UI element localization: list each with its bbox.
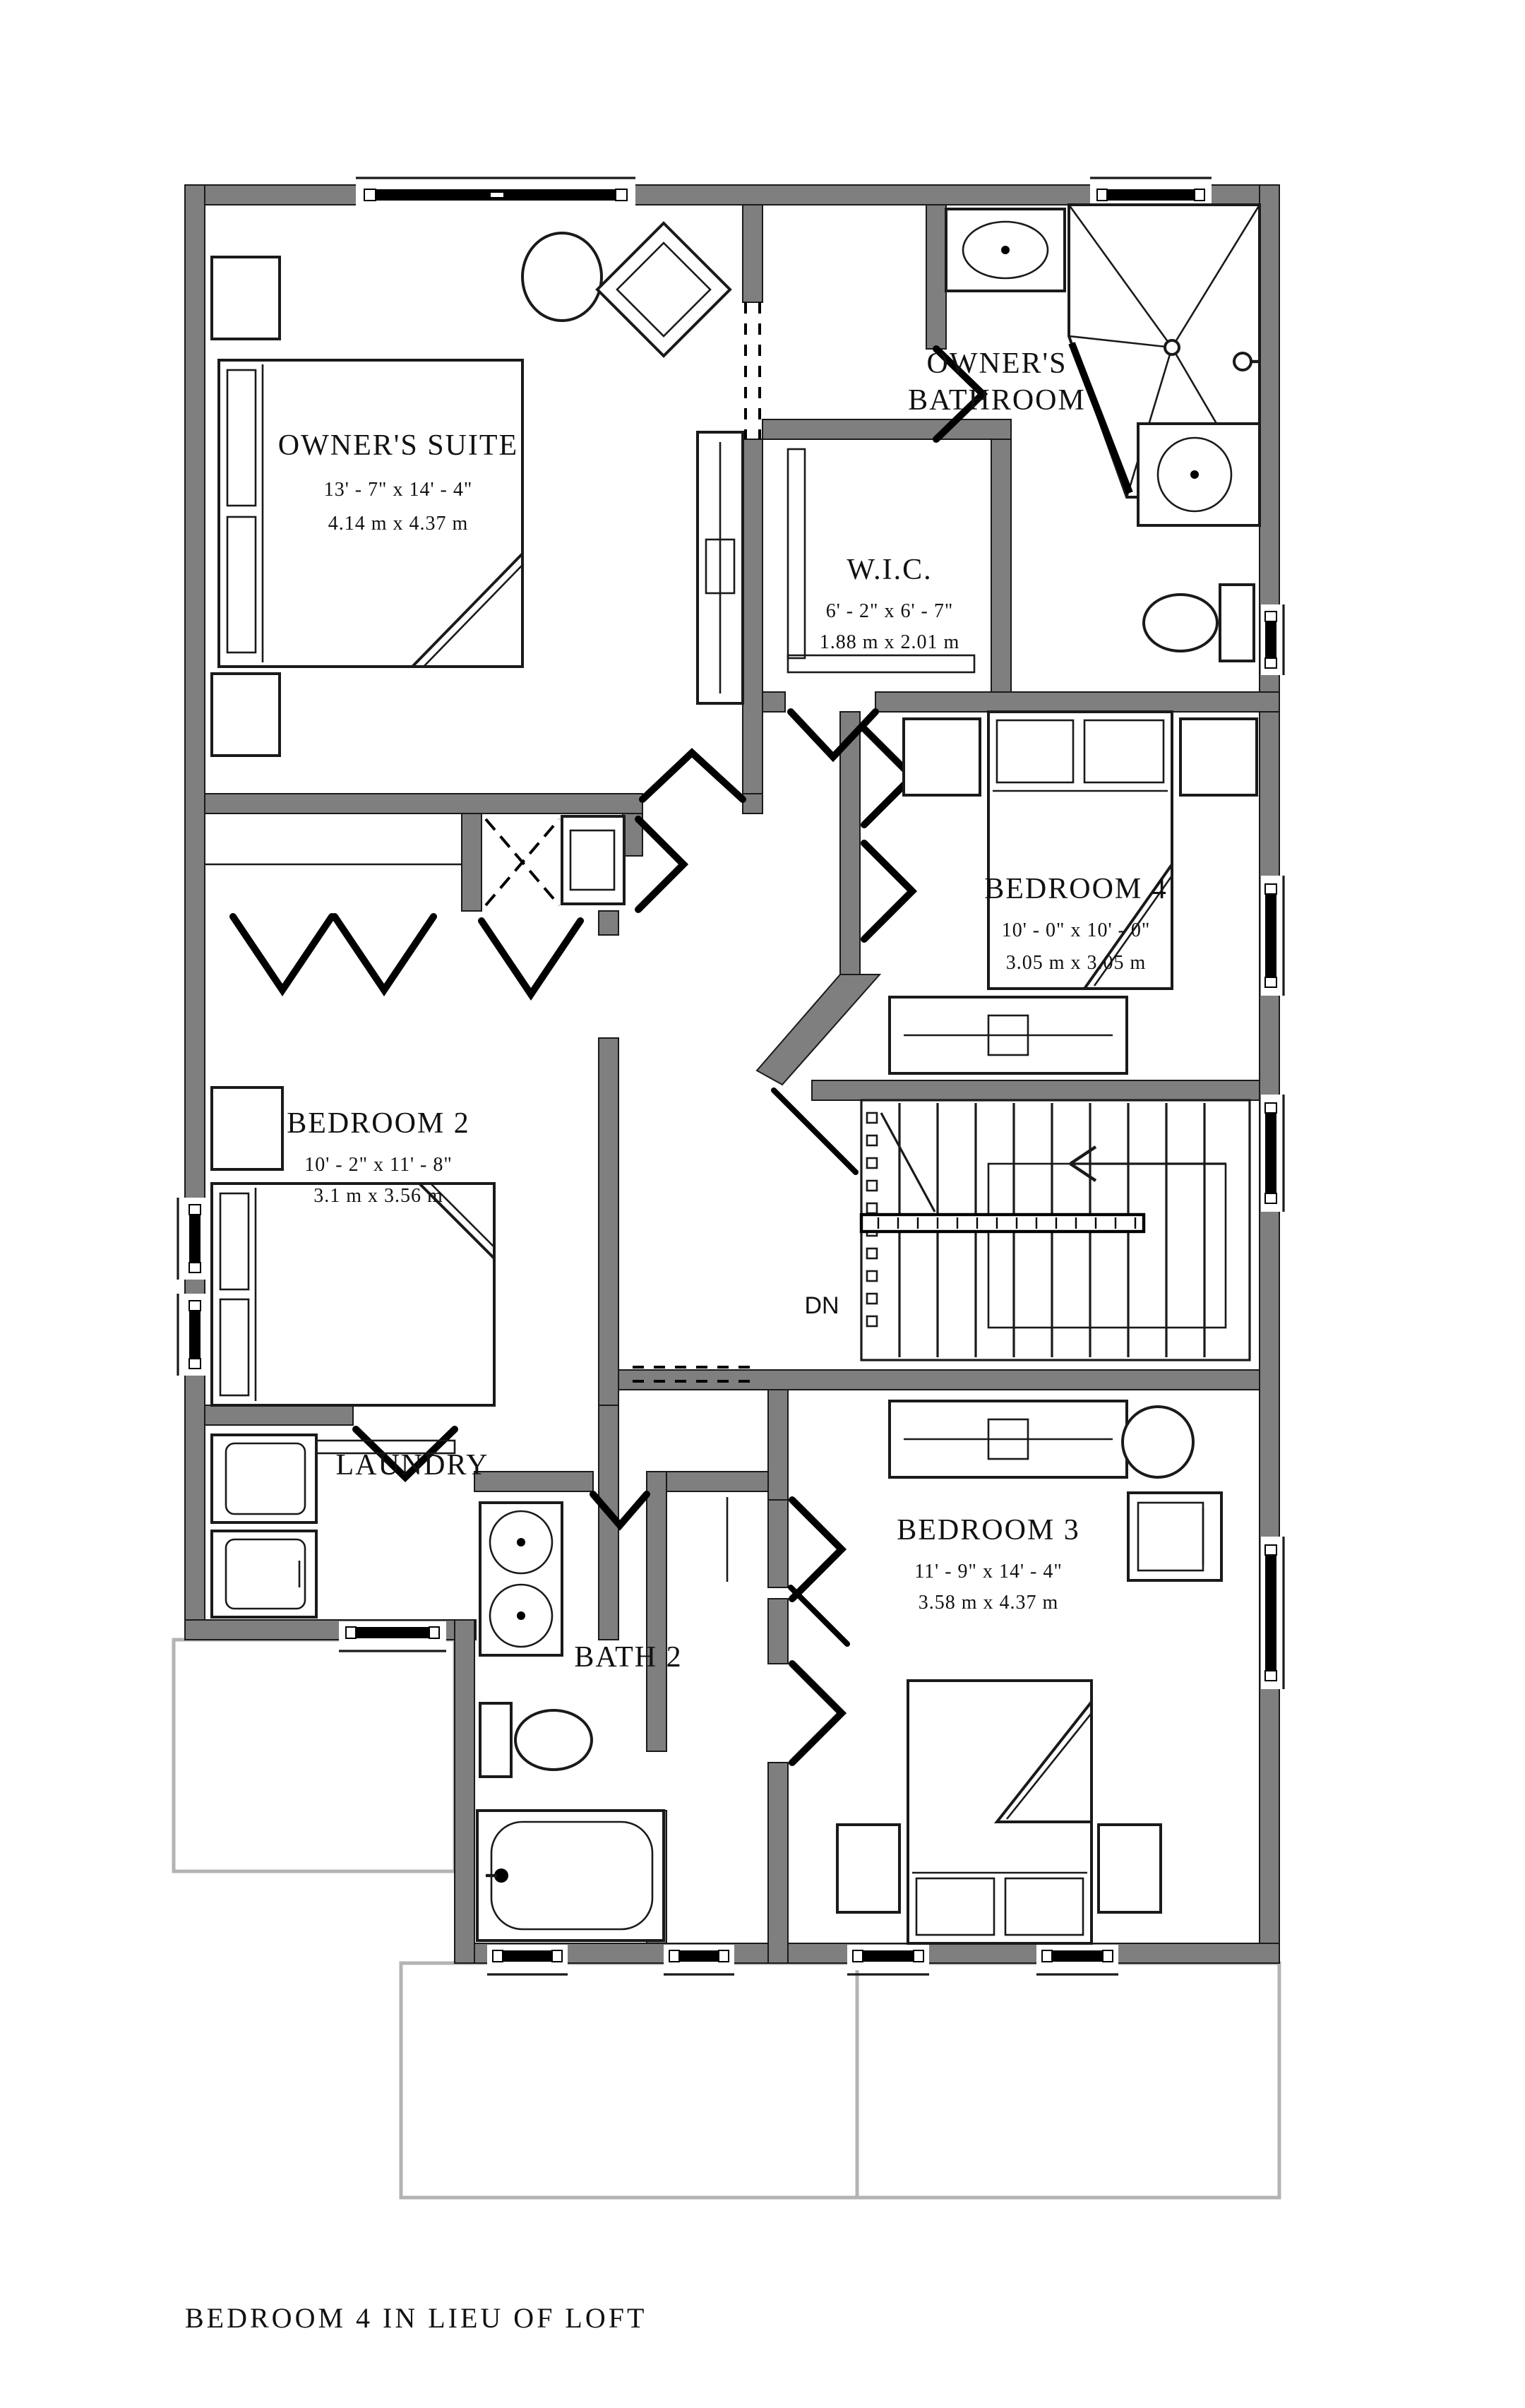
door-wic — [791, 712, 875, 757]
label-owners-bathroom: OWNER'S BATHROOM — [908, 347, 1086, 417]
armchair-icon — [1128, 1493, 1221, 1580]
floor-plan-drawing: DN — [0, 0, 1525, 2408]
wall-wic-top — [762, 419, 1011, 439]
side-table-icon — [1123, 1407, 1193, 1477]
window-bedroom2-a — [178, 1198, 208, 1280]
wall-linen-right — [768, 1491, 788, 1587]
label-bedroom3: BEDROOM 3 11' - 9" x 14' - 4" 3.58 m x 4… — [897, 1514, 1080, 1614]
window-bedroom3-bottom-a — [847, 1945, 929, 1974]
room-dim-imperial: 10' - 2" x 11' - 8" — [304, 1154, 453, 1176]
wall-os-right-lower — [743, 439, 762, 794]
label-bath2: BATH 2 — [574, 1641, 682, 1674]
room-dim-imperial: 11' - 9" x 14' - 4" — [914, 1561, 1063, 1583]
vanity-sink-icon — [946, 209, 1065, 291]
room-name: BEDROOM 2 — [287, 1107, 470, 1140]
porch-outline-right — [857, 1963, 1279, 2198]
window-bedroom2-b — [178, 1294, 208, 1376]
wall-os-bottom — [205, 794, 642, 813]
wall-bath-bedroom4 — [875, 692, 1279, 712]
window-owners-wc — [1261, 604, 1286, 675]
porch-outlines — [174, 1640, 1279, 2198]
room-dim-metric: 4.14 m x 4.37 m — [328, 513, 469, 535]
dryer-icon — [212, 1531, 316, 1617]
round-table-icon — [522, 233, 602, 321]
door-closet2-right — [335, 917, 433, 990]
utility-niche — [486, 816, 624, 905]
label-laundry: LAUNDRY — [335, 1449, 489, 1482]
wall-bath2-right-a — [647, 1472, 666, 1751]
window-bedroom4 — [1261, 876, 1286, 996]
nightstand-icon — [1099, 1825, 1161, 1912]
wall-right — [1260, 185, 1279, 1963]
wall-bedroom3-left-c — [768, 1763, 788, 1963]
room-name: W.I.C. — [847, 554, 932, 586]
room-name: BATHROOM — [908, 384, 1086, 417]
toilet-owners-icon — [1144, 585, 1254, 661]
washer-icon — [212, 1435, 316, 1522]
floor-plan-sheet: DN — [0, 0, 1525, 2408]
room-dim-imperial: 10' - 0" x 10' - 0" — [1002, 919, 1151, 941]
label-wic: W.I.C. 6' - 2" x 6' - 7" 1.88 m x 2.01 m — [820, 554, 960, 653]
room-name: OWNER'S SUITE — [278, 429, 518, 462]
double-vanity-icon — [480, 1503, 562, 1655]
room-name: OWNER'S — [927, 347, 1067, 380]
window-laundry — [339, 1621, 446, 1651]
bed-bedroom3-icon — [908, 1681, 1092, 1943]
window-bedroom3-right — [1261, 1537, 1286, 1689]
room-dim-metric: 3.05 m x 3.05 m — [1006, 952, 1147, 974]
bed-bedroom2-icon — [212, 1184, 494, 1405]
wall-stairs-top — [812, 1080, 1260, 1100]
door-closet4-b — [864, 843, 912, 939]
dresser-icon — [890, 997, 1127, 1073]
toilet-bath2-icon — [480, 1703, 592, 1777]
room-dim-imperial: 13' - 7" x 14' - 4" — [324, 479, 473, 501]
wall-bedroom3-left-a — [768, 1390, 788, 1500]
staircase: DN — [804, 1100, 1250, 1360]
plan-caption: BEDROOM 4 IN LIEU OF LOFT — [185, 2302, 647, 2334]
wall-bedroom2-right-a — [599, 911, 618, 935]
closet-shelf-icon — [788, 655, 974, 672]
room-dim-metric: 3.1 m x 3.56 m — [313, 1185, 443, 1207]
wall-bath2-top — [474, 1472, 593, 1491]
wardrobe-icon — [698, 432, 743, 703]
wall-bedroom3-left-b — [768, 1599, 788, 1664]
window-owners-bathroom — [1090, 178, 1212, 208]
room-name: BATH 2 — [574, 1641, 682, 1674]
wall-os-right-upper — [743, 205, 762, 302]
bathtub-icon — [477, 1811, 664, 1941]
stairs-dn-label: DN — [804, 1292, 839, 1319]
window-owners-suite — [356, 178, 635, 208]
room-dim-metric: 1.88 m x 2.01 m — [820, 631, 960, 653]
window-bedroom3-bottom-b — [1036, 1945, 1118, 1974]
stair-handrail — [861, 1215, 1144, 1232]
wall-os-bottom-stub — [743, 794, 762, 813]
door-hall-angled — [774, 1090, 856, 1172]
wall-angled-hall — [757, 974, 880, 1085]
stair-direction-arrow — [1070, 1147, 1226, 1181]
chair-diamond-icon — [597, 223, 730, 356]
room-dim-metric: 3.58 m x 4.37 m — [919, 1592, 1059, 1614]
closet-shelf-icon — [788, 449, 805, 658]
door-closet2-left — [233, 917, 332, 990]
stair-opening-outline — [988, 1164, 1226, 1328]
bedroom3-furniture — [837, 1401, 1221, 1943]
window-bath2-tub — [487, 1945, 568, 1974]
porch-outline-left — [401, 1963, 857, 2198]
wall-closet2-right — [462, 813, 482, 911]
room-name: BEDROOM 3 — [897, 1514, 1080, 1546]
label-bedroom2: BEDROOM 2 10' - 2" x 11' - 8" 3.1 m x 3.… — [287, 1107, 470, 1207]
nightstand-icon — [1180, 719, 1257, 795]
door-bedroom3-a — [792, 1500, 842, 1599]
nightstand-icon — [904, 719, 980, 795]
wall-wic-right — [991, 439, 1011, 692]
owners-suite-furniture — [212, 223, 743, 756]
wall-left — [185, 185, 205, 1640]
vanity-sink2-icon — [1138, 424, 1260, 525]
door-owners-suite — [642, 753, 743, 799]
wall-laundry-top — [205, 1405, 353, 1425]
sink-cabinet-icon — [562, 816, 624, 904]
nightstand-icon — [837, 1825, 899, 1912]
wall-wic-bottom-stub — [762, 692, 785, 712]
nightstand-icon — [212, 257, 280, 339]
door-bedroom3-b — [792, 1664, 842, 1763]
room-name: BEDROOM 4 — [984, 873, 1168, 905]
nightstand-icon — [212, 674, 280, 756]
wall-bedroom3-top — [618, 1370, 1260, 1390]
door-xroom — [638, 819, 683, 910]
window-hall-bottom — [664, 1945, 734, 1974]
room-name: LAUNDRY — [335, 1449, 489, 1482]
wall-bedroom2-right-b — [599, 1038, 618, 1405]
dresser-icon — [890, 1401, 1127, 1477]
wall-bath2-left — [455, 1620, 474, 1963]
nightstand-icon — [212, 1087, 282, 1169]
roof-outline-left — [174, 1640, 455, 1871]
door-bedroom2 — [482, 921, 580, 994]
window-stairwell — [1261, 1095, 1286, 1212]
room-dim-imperial: 6' - 2" x 6' - 7" — [826, 600, 954, 622]
stair-winder-line — [881, 1113, 935, 1212]
label-bedroom4: BEDROOM 4 10' - 0" x 10' - 0" 3.05 m x 3… — [984, 873, 1168, 974]
bed-bedroom4-icon — [988, 712, 1172, 989]
wall-bath-left — [926, 205, 946, 349]
